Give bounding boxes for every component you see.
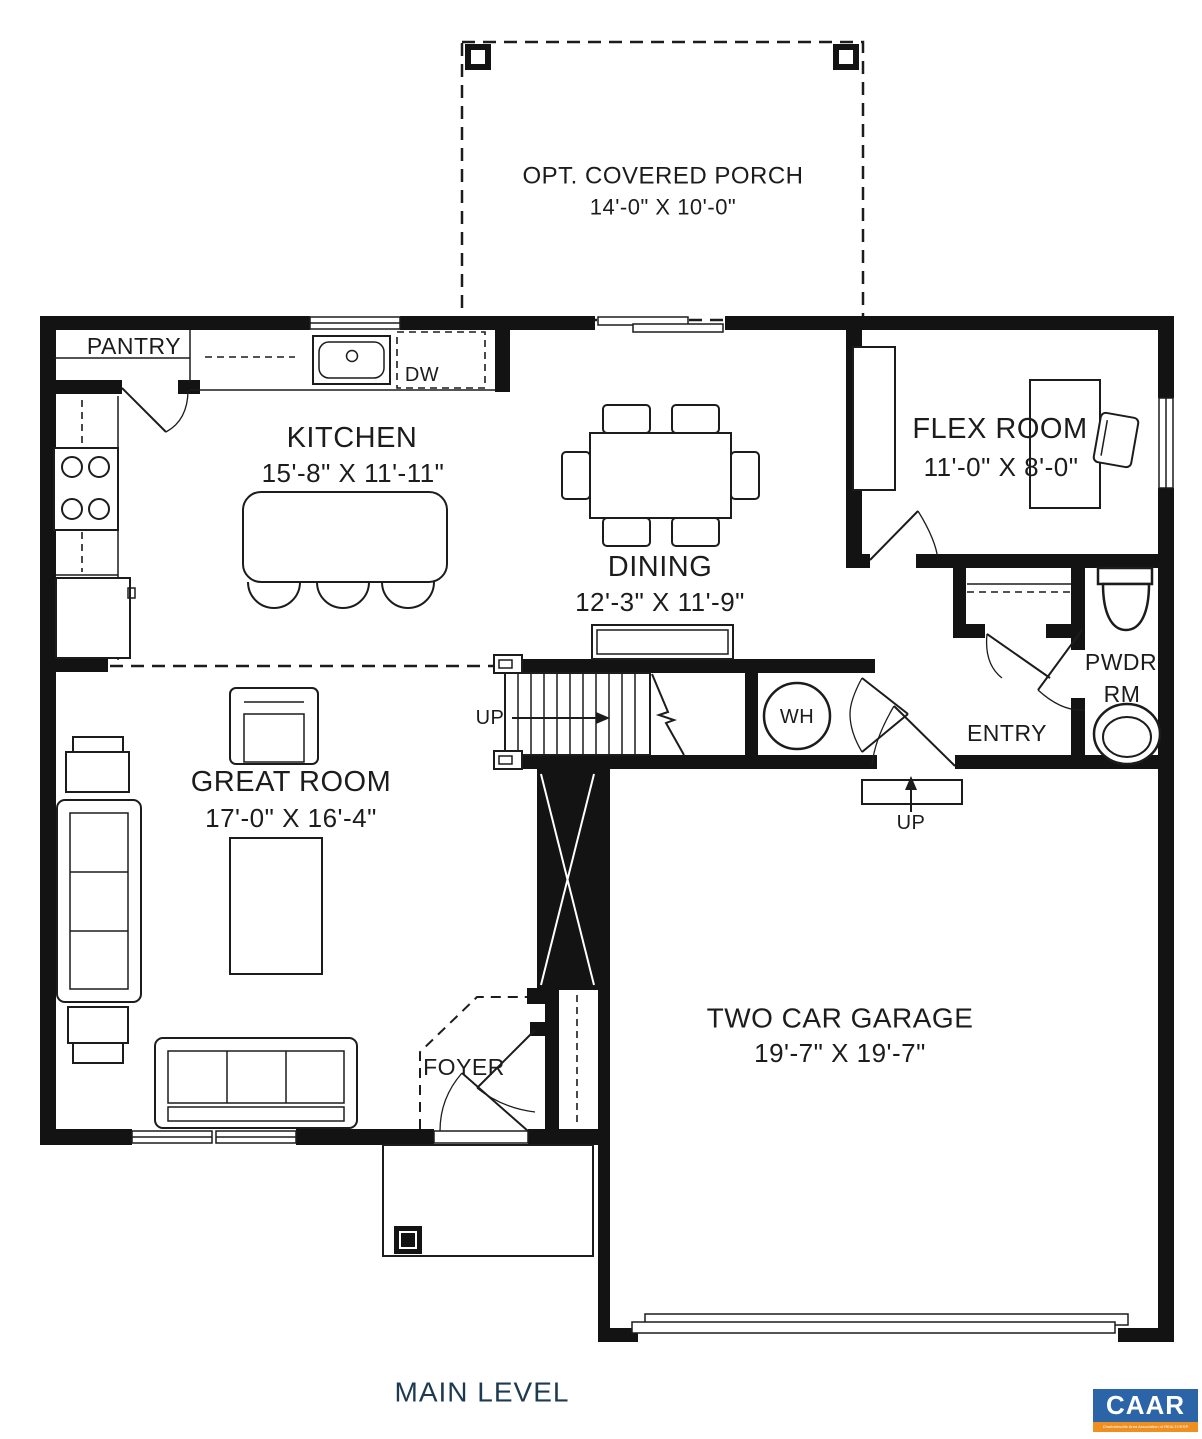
armchair bbox=[230, 688, 318, 764]
stair-break-line bbox=[652, 674, 684, 755]
pantry-label: PANTRY bbox=[87, 333, 181, 359]
front-door-opening bbox=[434, 1131, 528, 1143]
stoop-post bbox=[394, 1226, 422, 1254]
front-door bbox=[462, 1073, 528, 1131]
kitchen-label: KITCHEN bbox=[287, 422, 418, 454]
flex-room-label: FLEX ROOM bbox=[912, 413, 1087, 445]
entry-label: ENTRY bbox=[967, 720, 1047, 746]
dining-chair bbox=[731, 452, 759, 499]
garage-entry-door bbox=[894, 706, 955, 766]
stool-icon bbox=[382, 582, 434, 608]
caar-logo: CAAR Charlottesville Area Association of… bbox=[1093, 1389, 1198, 1432]
refrigerator-icon bbox=[56, 578, 130, 658]
dining-chair bbox=[562, 452, 590, 499]
foyer-label: FOYER bbox=[423, 1054, 505, 1080]
up-garage-label: UP bbox=[897, 812, 926, 834]
kitchen-island bbox=[243, 492, 447, 582]
pantry-door bbox=[122, 388, 166, 432]
flex-room-door bbox=[870, 511, 918, 560]
dining-chair bbox=[603, 405, 650, 433]
stair-treads bbox=[505, 673, 650, 755]
dining-dims: 12'-3" X 11'-9" bbox=[575, 587, 745, 617]
caar-logo-text: CAAR bbox=[1093, 1389, 1198, 1421]
dining-chair bbox=[672, 518, 719, 546]
great-room-furniture bbox=[57, 688, 357, 1128]
great-room-dims: 17'-0" X 16'-4" bbox=[205, 803, 377, 833]
powder-room-label: RM bbox=[1104, 681, 1141, 707]
kitchen-dims: 15'-8" X 11'-11" bbox=[262, 458, 445, 488]
toilet-icon bbox=[1098, 568, 1152, 584]
coffee-table bbox=[230, 838, 322, 974]
dining-chair bbox=[603, 518, 650, 546]
up-stairs-label: UP bbox=[476, 707, 505, 729]
garage-dims: 19'-7" X 19'-7" bbox=[754, 1038, 926, 1068]
stool-icon bbox=[317, 582, 369, 608]
water-heater-label: WH bbox=[780, 706, 814, 728]
porch-dims: 14'-0" X 10'-0" bbox=[590, 195, 736, 220]
dining-table bbox=[590, 433, 731, 518]
floor-plan: OPT. COVERED PORCH 14'-0" X 10'-0" PANTR… bbox=[0, 0, 1202, 1439]
chase bbox=[537, 769, 598, 990]
desk-chair bbox=[1093, 412, 1139, 468]
dining-furniture bbox=[562, 405, 759, 659]
newel-post bbox=[494, 655, 522, 673]
porch-label: OPT. COVERED PORCH bbox=[522, 163, 803, 190]
wh-closet-door bbox=[862, 678, 908, 714]
powder-door bbox=[1038, 630, 1082, 690]
dishwasher-label: DW bbox=[405, 364, 439, 386]
bookcase bbox=[853, 347, 895, 490]
newel-post bbox=[494, 751, 522, 769]
dining-chair bbox=[672, 405, 719, 433]
floor-plan-drawing: OPT. COVERED PORCH 14'-0" X 10'-0" PANTR… bbox=[0, 0, 1202, 1439]
pantry-wall bbox=[54, 380, 122, 394]
great-room-label: GREAT ROOM bbox=[191, 766, 392, 798]
labels: OPT. COVERED PORCH 14'-0" X 10'-0" PANTR… bbox=[87, 163, 1157, 1408]
stool-icon bbox=[248, 582, 300, 608]
end-table bbox=[68, 1007, 128, 1043]
caar-logo-tagline: Charlottesville Area Association of REAL… bbox=[1093, 1422, 1198, 1432]
page-title: MAIN LEVEL bbox=[395, 1377, 570, 1408]
dining-label: DINING bbox=[608, 551, 713, 583]
powder-room-label: PWDR bbox=[1085, 649, 1157, 675]
closet-door bbox=[987, 634, 1050, 678]
garage-label: TWO CAR GARAGE bbox=[707, 1003, 974, 1034]
flex-room-dims: 11'-0" X 8'-0" bbox=[924, 452, 1079, 482]
